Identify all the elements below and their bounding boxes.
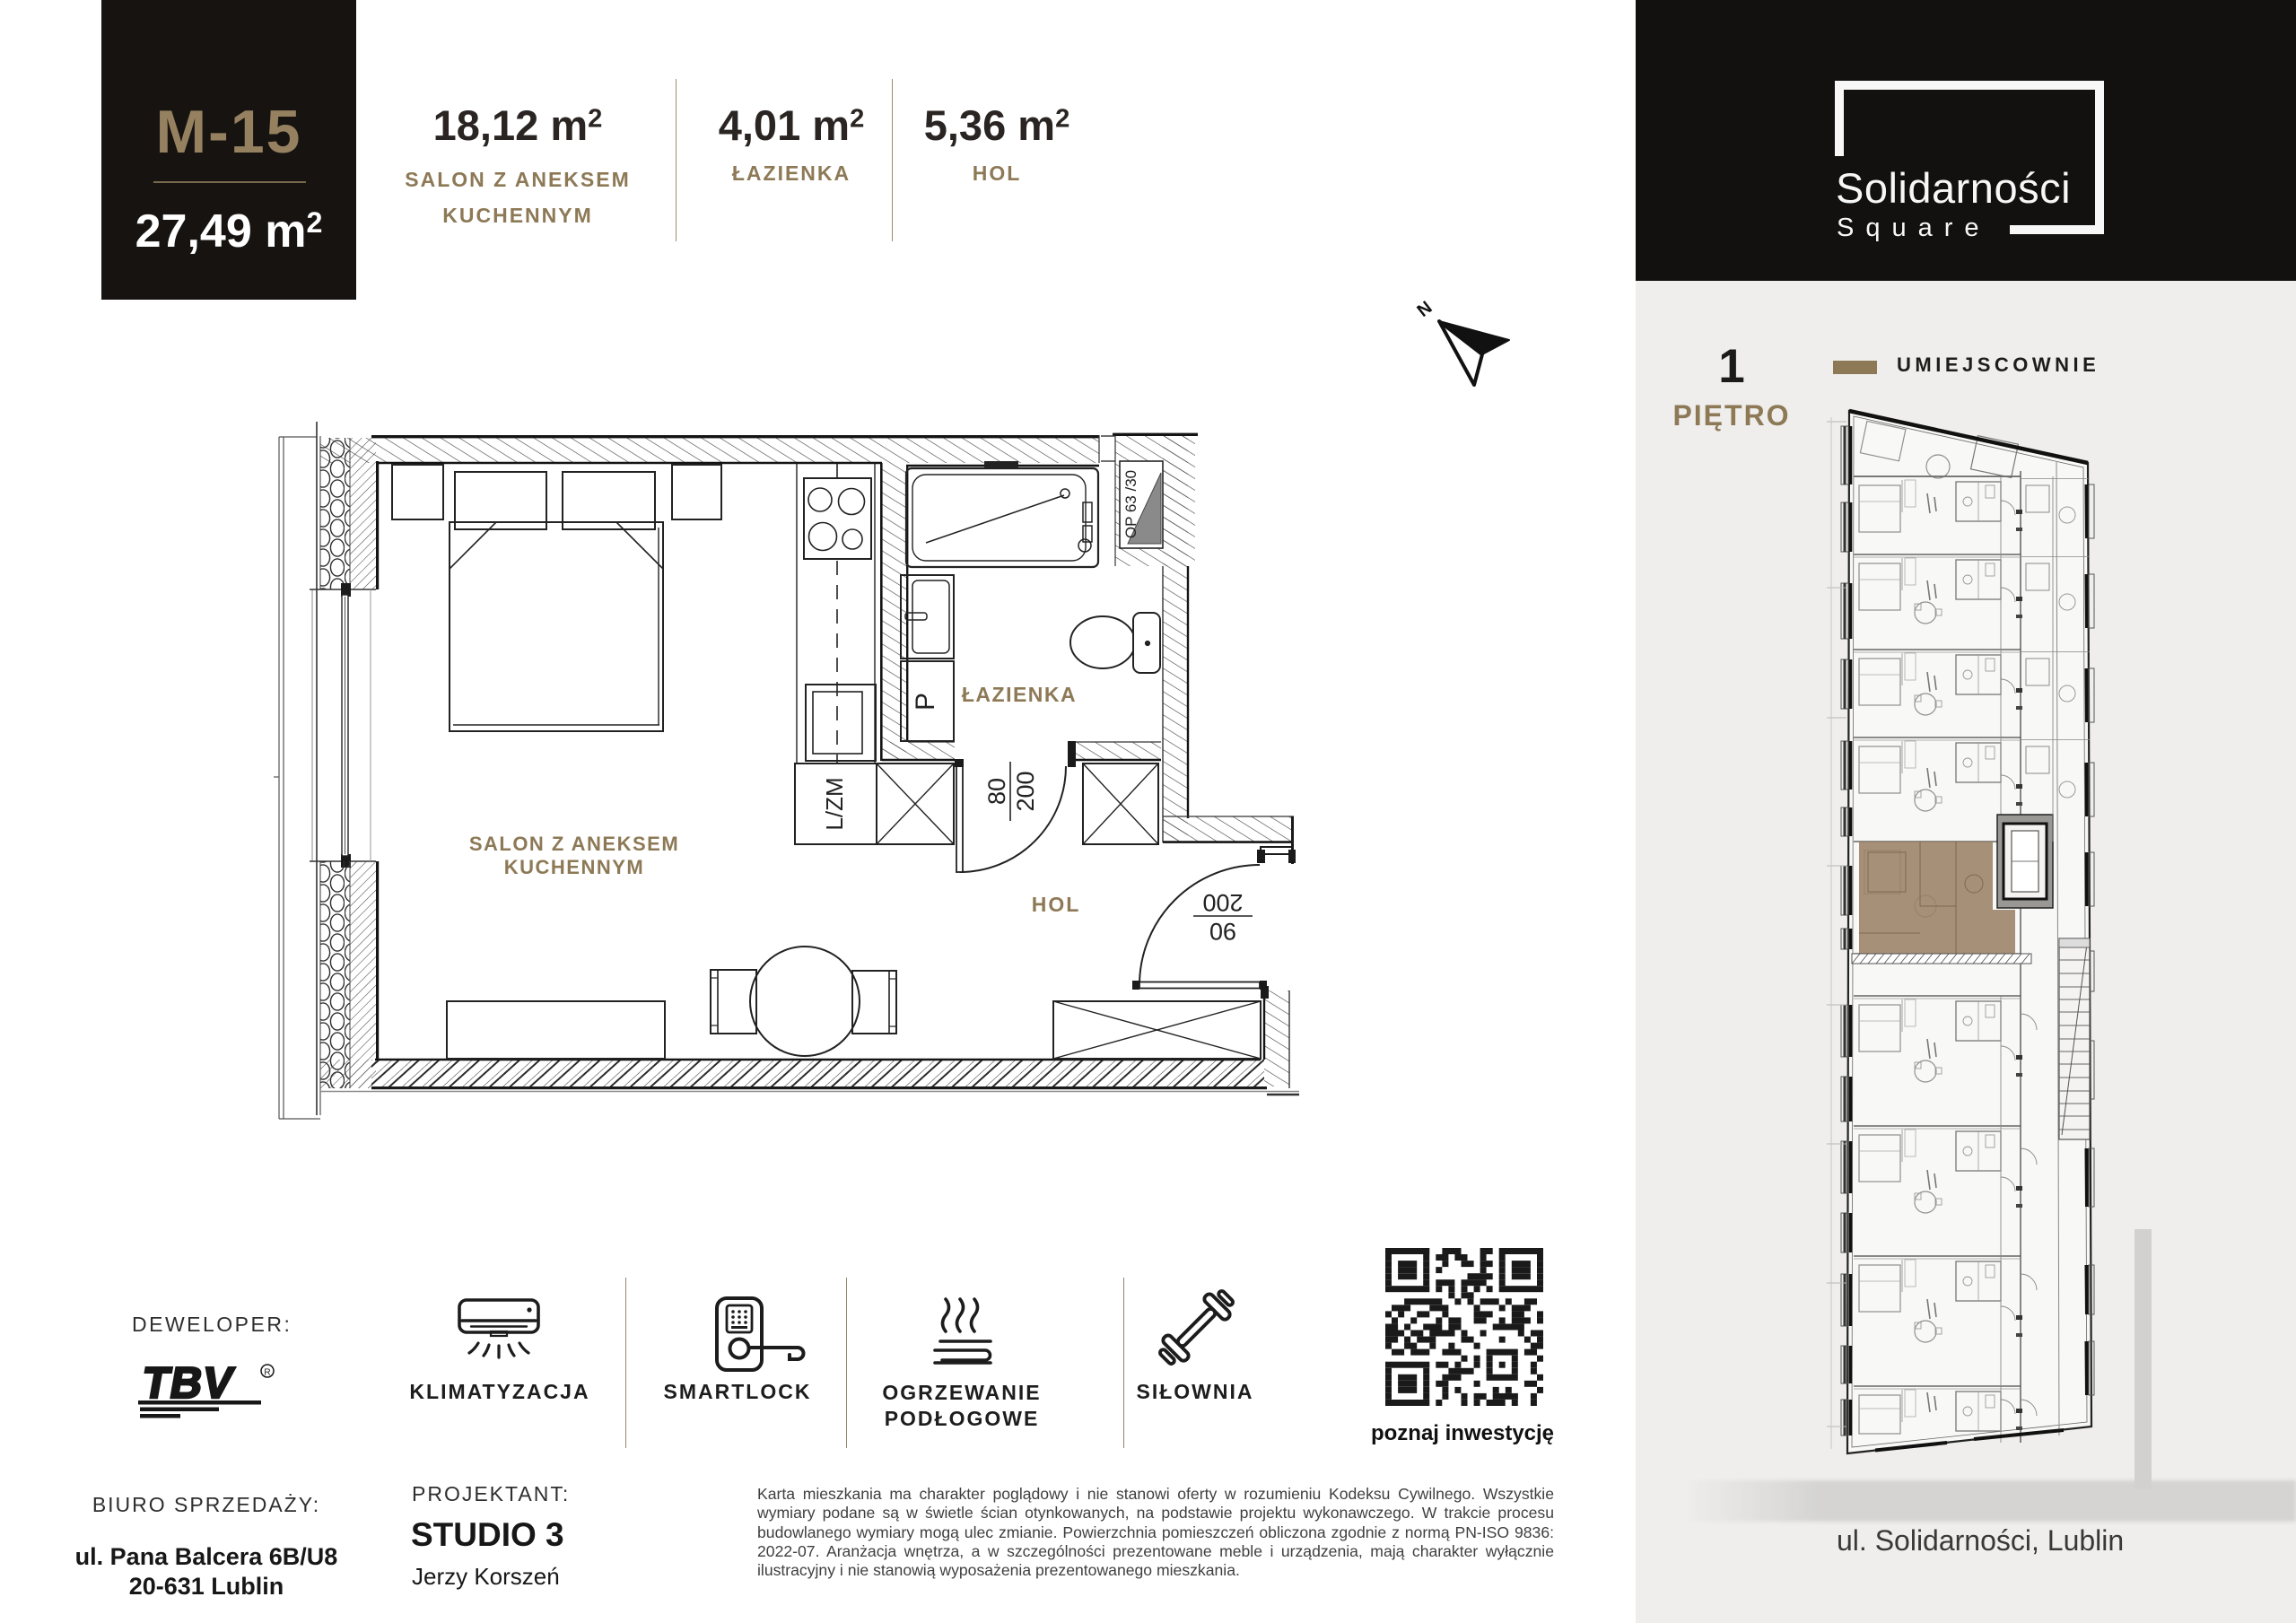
svg-text:80: 80: [983, 778, 1010, 805]
svg-text:HOL: HOL: [1032, 893, 1081, 916]
svg-text:TBV: TBV: [138, 1359, 238, 1408]
svg-text:N: N: [1414, 298, 1436, 321]
svg-text:Solidarności: Solidarności: [1836, 164, 2071, 212]
svg-text:L/ZM: L/ZM: [821, 777, 848, 830]
svg-text:OP 63 /30: OP 63 /30: [1122, 470, 1139, 538]
svg-text:KUCHENNYM: KUCHENNYM: [504, 856, 645, 878]
svg-text:SALON Z ANEKSEM: SALON Z ANEKSEM: [469, 833, 679, 855]
svg-text:200: 200: [1202, 889, 1243, 916]
svg-text:R: R: [264, 1368, 270, 1378]
svg-text:90: 90: [1209, 918, 1236, 945]
svg-text:ŁAZIENKA: ŁAZIENKA: [962, 683, 1077, 706]
svg-text:Square: Square: [1837, 214, 1991, 242]
svg-text:P: P: [911, 693, 940, 711]
svg-text:200: 200: [1012, 771, 1039, 811]
